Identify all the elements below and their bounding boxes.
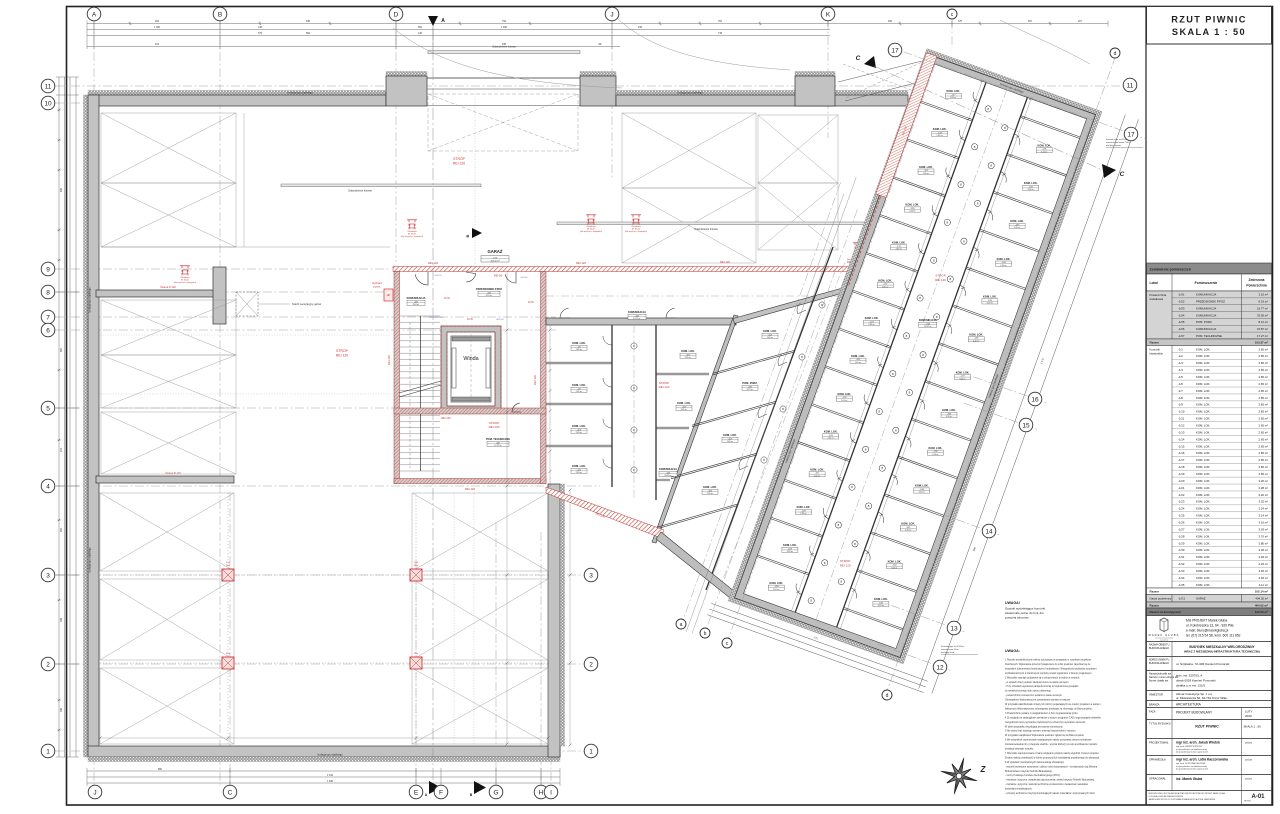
svg-text:Pomieszczenie: Pomieszczenie: [1195, 281, 1218, 285]
svg-text:C: C: [1120, 171, 1125, 178]
svg-text:12: 12: [936, 664, 944, 671]
svg-text:-1/13: -1/13: [1178, 430, 1185, 434]
svg-text:2.65 m²: 2.65 m²: [1259, 389, 1269, 393]
svg-text:KOM. LOK.: KOM. LOK.: [1196, 576, 1211, 580]
svg-text:KOM. LOK.: KOM. LOK.: [1196, 361, 1211, 365]
svg-text:404.02 m²: 404.02 m²: [1255, 603, 1268, 607]
svg-text:-1/33: -1/33: [1015, 224, 1019, 226]
svg-text:Lokal: Lokal: [1150, 281, 1158, 285]
svg-text:2.65 m²: 2.65 m²: [727, 440, 734, 443]
svg-text:RZUT PIWNIC: RZUT PIWNIC: [1195, 725, 1219, 729]
svg-text:308: 308: [60, 707, 63, 712]
svg-text:instalacji wewnątrz szachtu.: instalacji wewnątrz szachtu.: [1005, 748, 1034, 751]
svg-text:KOM. LOK.: KOM. LOK.: [942, 408, 956, 412]
svg-text:3.03 m²: 3.03 m²: [1259, 527, 1269, 531]
svg-text:3.20 m²: 3.20 m²: [1041, 150, 1048, 153]
svg-text:Powierzchnia: Powierzchnia: [1246, 284, 1267, 288]
svg-text:A-01: A-01: [1251, 794, 1265, 800]
svg-text:lokatorskie: lokatorskie: [1150, 351, 1164, 355]
svg-text:3.20 m²: 3.20 m²: [905, 529, 912, 532]
svg-text:-1/07: -1/07: [496, 442, 500, 444]
svg-text:KOM. LOK.: KOM. LOK.: [933, 127, 947, 131]
svg-text:11: 11: [1127, 82, 1134, 89]
svg-text:wzmocnienie 50cm: wzmocnienie 50cm: [941, 649, 959, 651]
svg-text:a: a: [680, 622, 683, 628]
svg-text:- przepisy techniczne instytuc: - przepisy techniczne instytucji kontrol…: [1005, 792, 1096, 795]
svg-text:-1/19: -1/19: [1178, 472, 1185, 476]
svg-text:FAZA: FAZA: [1149, 710, 1156, 714]
svg-text:80/2,00: 80/2,00: [497, 319, 505, 321]
svg-text:d: d: [1114, 51, 1117, 57]
svg-text:-1/07: -1/07: [1178, 334, 1185, 338]
svg-text:148: 148: [258, 26, 263, 29]
svg-text:KOM. LOK.: KOM. LOK.: [1196, 548, 1211, 552]
svg-text:Winda: Winda: [463, 356, 478, 362]
svg-text:2.65 m²: 2.65 m²: [1259, 458, 1269, 462]
svg-text:KOMUNIKACJA: KOMUNIKACJA: [1196, 327, 1216, 331]
svg-text:-1/8: -1/8: [577, 346, 580, 348]
svg-text:4.18 m²: 4.18 m²: [1259, 576, 1269, 580]
svg-text:KOM. LOK.: KOM. LOK.: [703, 485, 717, 489]
svg-text:KOM. LOK.: KOM. LOK.: [837, 392, 851, 396]
svg-text:KOM. LOK.: KOM. LOK.: [919, 165, 933, 169]
svg-text:KOM. LOK.: KOM. LOK.: [1196, 493, 1211, 497]
svg-text:6: 6: [46, 327, 50, 334]
svg-text:-1/42: -1/42: [892, 565, 896, 567]
svg-text:-1/18: -1/18: [1178, 465, 1185, 469]
svg-text:KOM. LOK.: KOM. LOK.: [797, 505, 811, 509]
svg-text:KOM. LOK.: KOM. LOK.: [677, 401, 691, 405]
svg-text:KOM. LOK.: KOM. LOK.: [1196, 375, 1211, 379]
svg-text:POM. PORZ.: POM. PORZ.: [1196, 320, 1213, 324]
svg-text:KOM. LOK.: KOM. LOK.: [929, 446, 943, 450]
svg-text:KOM. LOK.: KOM. LOK.: [572, 464, 586, 468]
svg-text:3.20 m²: 3.20 m²: [891, 566, 898, 569]
svg-text:Izolacja typu ciężkiego: Izolacja typu ciężkiego: [677, 92, 703, 95]
svg-text:1 Rysunki architektoniczne na: 1 Rysunki architektoniczne należy odczyt…: [1005, 659, 1091, 662]
svg-text:3.20 m²: 3.20 m²: [919, 491, 926, 494]
svg-text:-1/31: -1/31: [1178, 555, 1185, 559]
svg-text:KOM. LOK.: KOM. LOK.: [723, 433, 737, 437]
svg-text:-1/20: -1/20: [1178, 479, 1185, 483]
svg-text:2.65 m²: 2.65 m²: [576, 471, 583, 474]
svg-text:-1/22: -1/22: [883, 284, 887, 286]
svg-text:2.65 m²: 2.65 m²: [1259, 410, 1269, 414]
svg-text:b: b: [704, 631, 707, 637]
svg-text:BUDOWLANEGO: BUDOWLANEGO: [1149, 647, 1169, 650]
svg-text:podpis: podpis: [1245, 742, 1253, 745]
svg-text:-1/05: -1/05: [1178, 320, 1185, 324]
svg-text:-1/2: -1/2: [1178, 354, 1183, 358]
svg-text:KOM. LOK.: KOM. LOK.: [1196, 444, 1211, 448]
svg-text:-1/01: -1/01: [1178, 293, 1185, 297]
svg-text:8 W sprawach nieokreślonych d: 8 W sprawach nieokreślonych dokumentacją…: [1005, 761, 1064, 764]
svg-text:Razem na kondygnacji: Razem na kondygnacji: [1150, 610, 1181, 614]
svg-text:-1/28: -1/28: [1178, 534, 1185, 538]
svg-text:2.65 m²: 2.65 m²: [1259, 430, 1269, 434]
svg-text:POM. TECHNICZNE: POM. TECHNICZNE: [1196, 334, 1222, 338]
svg-text:8.12 m²: 8.12 m²: [747, 388, 754, 391]
svg-text:Zestawienie pomieszczeń: Zestawienie pomieszczeń: [1150, 268, 1191, 272]
svg-text:RZUT PIWNIC: RZUT PIWNIC: [1171, 15, 1247, 25]
svg-text:KOM. LOK.: KOM. LOK.: [1196, 451, 1211, 455]
svg-text:2.65 m²: 2.65 m²: [882, 285, 889, 288]
svg-text:D: D: [394, 11, 399, 18]
svg-text:-1/21: -1/21: [897, 246, 901, 248]
svg-text:103.37 m²: 103.37 m²: [1255, 341, 1268, 345]
svg-text:-1/11: -1/11: [577, 469, 581, 471]
svg-text:-1/34: -1/34: [1178, 576, 1185, 580]
svg-text:2.65 m²: 2.65 m²: [1259, 368, 1269, 372]
svg-text:B: B: [218, 11, 222, 18]
svg-text:2.65 m²: 2.65 m²: [773, 588, 780, 591]
svg-text:3.10 m²: 3.10 m²: [1259, 293, 1269, 297]
svg-text:SPRAWDZIŁA: SPRAWDZIŁA: [1149, 758, 1166, 762]
svg-text:860: 860: [158, 768, 163, 771]
svg-text:-1/04: -1/04: [666, 472, 670, 474]
svg-text:455: 455: [888, 20, 893, 23]
svg-text:2.65 m²: 2.65 m²: [787, 550, 794, 553]
svg-text:REI 120: REI 120: [720, 260, 731, 264]
svg-text:(do wejścia z budynku): (do wejścia z budynku): [401, 236, 424, 238]
svg-text:2: 2: [46, 661, 50, 668]
svg-text:3.20 m²: 3.20 m²: [1014, 226, 1021, 229]
svg-text:REI 120: REI 120: [840, 563, 851, 567]
svg-text:15: 15: [1022, 422, 1030, 429]
svg-text:KOM. LOK.: KOM. LOK.: [1196, 486, 1211, 490]
svg-text:-1/16: -1/16: [1178, 451, 1185, 455]
svg-text:REI 120: REI 120: [336, 354, 348, 358]
svg-text:upr. bud. 11/ZPOIA/OKK/2008: upr. bud. 11/ZPOIA/OKK/2008: [1176, 762, 1206, 765]
svg-text:KOM. LOK.: KOM. LOK.: [1196, 465, 1211, 469]
svg-text:2.65 m²: 2.65 m²: [1259, 444, 1269, 448]
svg-text:-1/7: -1/7: [1178, 389, 1183, 393]
svg-text:2.65 m²: 2.65 m²: [1259, 382, 1269, 386]
svg-text:3: 3: [46, 572, 50, 579]
svg-text:8.12 m²: 8.12 m²: [1259, 320, 1269, 324]
svg-text:-1/31: -1/31: [1042, 149, 1046, 151]
svg-text:KOM. LOK.: KOM. LOK.: [1024, 181, 1038, 185]
svg-text:-1/37: -1/37: [960, 376, 964, 378]
svg-text:-1/23: -1/23: [869, 321, 873, 323]
svg-text:ul. Szpitalna, 72-400 Kamień P: ul. Szpitalna, 72-400 Kamień Pomorski: [1176, 662, 1230, 666]
svg-text:KOM. LOK.: KOM. LOK.: [892, 241, 906, 245]
svg-text:-1/29: -1/29: [788, 548, 792, 550]
svg-text:KOM. LOK.: KOM. LOK.: [1196, 521, 1211, 525]
svg-text:3.14 m²: 3.14 m²: [1259, 514, 1269, 518]
svg-text:A: A: [441, 18, 445, 24]
svg-text:lokatorskie pełne do h=1,4m: lokatorskie pełne do h=1,4m: [1005, 611, 1044, 615]
svg-text:KOM. LOK.: KOM. LOK.: [946, 89, 960, 93]
svg-text:3.20 m²: 3.20 m²: [959, 377, 966, 380]
svg-text:J: J: [93, 789, 96, 796]
svg-text:308: 308: [60, 617, 63, 622]
svg-text:3.80 m²: 3.80 m²: [1259, 541, 1269, 545]
svg-text:-1/5: -1/5: [1178, 375, 1183, 379]
svg-text:1 496: 1 496: [501, 26, 508, 29]
svg-text:(do wejścia z budynku): (do wejścia z budynku): [580, 231, 603, 233]
svg-text:2.65 m²: 2.65 m²: [1259, 472, 1269, 476]
svg-text:3.20 m²: 3.20 m²: [1259, 479, 1269, 483]
svg-text:KOM. LOK.: KOM. LOK.: [1196, 382, 1211, 386]
svg-text:2.65 m²: 2.65 m²: [576, 348, 583, 351]
svg-text:obręb 0003 Kamień Pomorski: obręb 0003 Kamień Pomorski: [1176, 679, 1216, 683]
svg-text:-1/04: -1/04: [1178, 313, 1185, 317]
svg-text:375: 375: [258, 32, 263, 35]
svg-text:-1/18: -1/18: [938, 132, 942, 134]
svg-text:KOM. LOK.: KOM. LOK.: [1196, 458, 1211, 462]
svg-text:2.65 m²: 2.65 m²: [909, 210, 916, 213]
svg-text:ul. Mickiewicza 52, 64-761 Krz: ul. Mickiewicza 52, 64-761 Krzyż Wlkp.: [1176, 696, 1228, 700]
svg-text:-1/43: -1/43: [879, 603, 883, 605]
svg-text:REI 120: REI 120: [387, 355, 391, 366]
svg-text:3.28 m²: 3.28 m²: [1259, 486, 1269, 490]
svg-text:4.18 m²: 4.18 m²: [1259, 555, 1269, 559]
svg-text:tel. (67) 215 54 58, kom. 600: tel. (67) 215 54 58, kom. 600 111 852: [1186, 634, 1241, 638]
svg-text:GARAŻ: GARAŻ: [1196, 596, 1206, 601]
svg-text:-1/02: -1/02: [1178, 300, 1185, 304]
svg-text:Razem: Razem: [1150, 603, 1160, 607]
svg-text:2.65 m²: 2.65 m²: [1259, 347, 1269, 351]
svg-text:W przypadku wątpliwości Wykona: W przypadku wątpliwości Wykonawca powini…: [1005, 734, 1085, 737]
svg-text:A: A: [92, 11, 97, 18]
svg-text:BUDOWLANEGO: BUDOWLANEGO: [1149, 662, 1169, 665]
svg-text:W przypadku jakichkolwiek zmia: W przypadku jakichkolwiek zmiany lub róż…: [1005, 703, 1101, 706]
svg-text:2.65 m²: 2.65 m²: [1259, 396, 1269, 400]
svg-text:3.24 m²: 3.24 m²: [1259, 507, 1269, 511]
svg-text:Szacht wentylacyjny gazów: Szacht wentylacyjny gazów: [292, 303, 321, 306]
svg-text:638: 638: [306, 20, 311, 23]
svg-text:2.65 m²: 2.65 m²: [841, 399, 848, 402]
svg-text:upr. bud. 46/WPOKK/2015: upr. bud. 46/WPOKK/2015: [1176, 745, 1203, 748]
svg-text:KOM. LOK.: KOM. LOK.: [851, 354, 865, 358]
svg-text:2.65 m²: 2.65 m²: [827, 437, 834, 440]
svg-text:-1/34: -1/34: [1001, 262, 1005, 264]
svg-text:REI 120: REI 120: [453, 162, 465, 166]
svg-text:- powierzchnie pomieszczeń pod: - powierzchnie pomieszczeń podano w stan…: [1005, 694, 1063, 697]
svg-text:4.18 m²: 4.18 m²: [1259, 569, 1269, 573]
svg-text:Razem: Razem: [1150, 590, 1160, 594]
svg-text:17.27 m²: 17.27 m²: [494, 444, 502, 447]
svg-text:wzmocnienie konstr. 50cm: wzmocnienie konstr. 50cm: [1106, 141, 1131, 144]
svg-text:KOM. LOK.: KOM. LOK.: [1196, 354, 1211, 358]
svg-text:KOM. LOK.: KOM. LOK.: [1196, 555, 1211, 559]
svg-text:15.87 m²: 15.87 m²: [924, 325, 932, 328]
svg-text:KOM. LOK.: KOM. LOK.: [681, 349, 695, 353]
svg-text:Obowiązkiem Wykonawcy jest spr: Obowiązkiem Wykonawcy jest sprawdzenie w…: [1005, 699, 1071, 702]
svg-text:Izolacja typu ciężkiego: Izolacja typu ciężkiego: [89, 547, 92, 573]
svg-text:KOM. LOK.: KOM. LOK.: [783, 543, 797, 547]
svg-text:KOM. LOK.: KOM. LOK.: [1196, 514, 1211, 518]
svg-text:17: 17: [1127, 131, 1135, 138]
svg-text:19.77 m²: 19.77 m²: [1257, 306, 1268, 310]
svg-text:-1/19: -1/19: [924, 170, 928, 172]
svg-text:PROJEKT BUDOWLANY: PROJEKT BUDOWLANY: [1176, 711, 1213, 715]
svg-text:Odwodnienie liniowe: Odwodnienie liniowe: [348, 189, 372, 193]
svg-text:W takim przypadku decydująca j: W takim przypadku decydująca jest wymiar…: [1005, 725, 1063, 728]
svg-text:-1/26: -1/26: [1178, 521, 1185, 525]
svg-text:17: 17: [891, 47, 899, 54]
svg-text:404: 404: [155, 43, 160, 46]
svg-text:2.65 m²: 2.65 m²: [1259, 403, 1269, 407]
svg-text:(do wejścia z budynku): (do wejścia z budynku): [174, 282, 197, 284]
svg-text:ARCHITEKTURA: ARCHITEKTURA: [1176, 703, 1202, 707]
svg-text:3.20 m²: 3.20 m²: [878, 604, 885, 607]
svg-text:REI 120: REI 120: [935, 278, 946, 282]
svg-text:2.65 m²: 2.65 m²: [1259, 465, 1269, 469]
svg-text:pod płytę fund.: pod płytę fund.: [941, 651, 955, 654]
svg-text:B: B: [465, 234, 470, 237]
svg-text:UWAGA!: UWAGA!: [1005, 601, 1020, 605]
svg-text:6 We wszystkich czynnościach: 6 We wszystkich czynnościach instalacyjn…: [1005, 739, 1092, 742]
svg-text:6.19 m²: 6.19 m²: [486, 294, 493, 297]
svg-text:PRZEŚWIT 1,8: PRZEŚWIT 1,8: [429, 316, 444, 319]
svg-text:do niewykończonego dołu otworu: do niewykończonego dołu otworu okiennego…: [1005, 690, 1052, 693]
svg-text:3.20 m²: 3.20 m²: [1027, 188, 1034, 191]
svg-text:- w opisach zbiorу opisami wie: - w opisach zbiorу opisami wielkość otwo…: [1005, 681, 1070, 684]
svg-text:- normy Polskiego Komitetu Nor: - normy Polskiego Komitetu Normalizacyjn…: [1005, 774, 1061, 777]
svg-text:w specjalności architektoniczn: w specjalności architektonicznej: [1176, 765, 1208, 768]
svg-text:-1/30: -1/30: [774, 586, 778, 588]
svg-text:105.14 m²: 105.14 m²: [1255, 590, 1268, 594]
svg-text:592: 592: [306, 32, 311, 35]
svg-text:wszystkimi dokumentami branżow: wszystkimi dokumentami branżowymi i budo…: [1005, 667, 1097, 670]
svg-text:-1/13: -1/13: [682, 406, 686, 408]
svg-text:KOM. LOK.: KOM. LOK.: [824, 430, 838, 434]
svg-text:J: J: [610, 11, 613, 18]
svg-text:-1/12: -1/12: [1178, 423, 1185, 427]
svg-text:4: 4: [46, 483, 50, 490]
svg-text:KOM. LOK.: KOM. LOK.: [810, 467, 824, 471]
svg-text:REI 80: REI 80: [494, 274, 503, 278]
svg-text:-1/4: -1/4: [1178, 368, 1183, 372]
svg-text:2.65 m²: 2.65 m²: [896, 248, 903, 251]
svg-text:5: 5: [46, 405, 50, 412]
svg-text:KOM. LOK.: KOM. LOK.: [983, 295, 997, 299]
svg-text:KOMUNIKACJA: KOMUNIKACJA: [659, 468, 677, 471]
svg-text:19.77 m²: 19.77 m²: [633, 317, 641, 320]
svg-text:KOMUNIKACJA: KOMUNIKACJA: [919, 319, 937, 322]
svg-text:POM. TECHNICZNE: POM. TECHNICZNE: [486, 437, 510, 441]
svg-text:-1/29: -1/29: [1178, 541, 1185, 545]
svg-text:KOM. LOK.: KOM. LOK.: [1196, 423, 1211, 427]
svg-text:3.20 m²: 3.20 m²: [987, 302, 994, 305]
svg-text:33.05 m²: 33.05 m²: [1257, 313, 1268, 317]
svg-text:KOM. LOK.: KOM. LOK.: [1196, 507, 1211, 511]
svg-text:3.32 m²: 3.32 m²: [1259, 500, 1269, 504]
svg-text:-1/6: -1/6: [1178, 382, 1183, 386]
svg-text:Zmiany należy przedstawić w fo: Zmiany należy przedstawić w formie propo…: [1005, 756, 1100, 759]
svg-text:404.02 m²: 404.02 m²: [490, 260, 499, 263]
svg-text:-1/14: -1/14: [1178, 437, 1185, 441]
svg-text:KOM. LOK.: KOM. LOK.: [572, 341, 586, 345]
svg-text:G: G: [493, 789, 498, 796]
svg-text:KOM. LOK.: KOM. LOK.: [1196, 479, 1211, 483]
svg-text:REI 120: REI 120: [659, 385, 670, 389]
svg-text:KOM. LOK.: KOM. LOK.: [878, 278, 892, 282]
svg-text:GARAŻ: GARAŻ: [488, 249, 503, 254]
svg-text:jedn. ew. 320703_4: jedn. ew. 320703_4: [1175, 674, 1202, 678]
svg-text:(niezastosowania min. przegrod: (niezastosowania min. przegrodę szachtu …: [1005, 743, 1098, 746]
svg-text:p.poż.: p.poż.: [373, 285, 381, 289]
svg-text:WRAZ Z NIEZBĘDNĄ INFRASTRUKTUR: WRAZ Z NIEZBĘDNĄ INFRASTRUKTURĄ TECHNICZ…: [1184, 650, 1261, 654]
svg-text:HP: HP: [387, 293, 391, 297]
svg-text:2.65 m²: 2.65 m²: [681, 408, 688, 411]
svg-text:16: 16: [1031, 396, 1039, 403]
svg-text:EI 30: EI 30: [467, 318, 473, 321]
svg-text:REI 120: REI 120: [576, 261, 587, 265]
svg-text:2.65 m²: 2.65 m²: [855, 361, 862, 364]
svg-text:-1/17: -1/17: [951, 95, 955, 97]
svg-text:Odwodnienie liniowe: Odwodnienie liniowe: [492, 45, 516, 49]
svg-text:NR RYS.: NR RYS.: [1244, 801, 1252, 803]
svg-text:KOM. LOK.: KOM. LOK.: [906, 203, 920, 207]
svg-text:2: 2: [589, 661, 593, 668]
svg-text:8: 8: [46, 289, 50, 296]
svg-text:2.65 m²: 2.65 m²: [868, 323, 875, 326]
svg-text:4.23 m²: 4.23 m²: [1259, 562, 1269, 566]
svg-text:KOMUNIKACJA: KOMUNIKACJA: [1196, 293, 1216, 297]
svg-text:KOMUNIKACJA: KOMUNIKACJA: [628, 311, 646, 314]
svg-text:2.65 m²: 2.65 m²: [1259, 354, 1269, 358]
svg-text:STROP: STROP: [336, 349, 348, 353]
svg-text:264: 264: [60, 527, 63, 532]
svg-text:10: 10: [44, 100, 52, 107]
svg-text:KOM. LOK.: KOM. LOK.: [1196, 347, 1211, 351]
svg-text:13: 13: [950, 625, 958, 632]
svg-text:-1/36: -1/36: [974, 338, 978, 340]
svg-text:-1/25: -1/25: [1178, 514, 1185, 518]
svg-text:dodatkowa: dodatkowa: [1150, 297, 1164, 301]
svg-text:-1/24: -1/24: [856, 359, 860, 361]
svg-text:KOM. LOK.: KOM. LOK.: [1196, 389, 1211, 393]
svg-text:- instrukcje, wytyczne i warun: - instrukcje, wytyczne i warunki technic…: [1005, 783, 1088, 786]
svg-text:1: 1: [46, 748, 50, 755]
svg-text:KOM. LOK.: KOM. LOK.: [874, 597, 888, 601]
svg-text:3.20 m²: 3.20 m²: [932, 453, 939, 456]
svg-text:2020: 2020: [1245, 714, 1252, 718]
svg-text:-1/12: -1/12: [686, 354, 690, 356]
svg-text:2.65 m²: 2.65 m²: [1259, 375, 1269, 379]
svg-text:KOM. LOK.: KOM. LOK.: [1196, 500, 1211, 504]
svg-text:Izolacja typu ciężkiego: Izolacja typu ciężkiego: [317, 754, 343, 757]
svg-text:454: 454: [155, 20, 160, 23]
svg-text:-1/14: -1/14: [768, 334, 772, 336]
svg-text:ul. Kołobrzeska 13, 64 - 920 P: ul. Kołobrzeska 13, 64 - 920 Piła: [1186, 624, 1234, 628]
svg-text:POM. PORZ.: POM. PORZ.: [742, 381, 758, 385]
svg-text:-1/02: -1/02: [487, 292, 491, 294]
svg-text:-1/35: -1/35: [1178, 583, 1185, 587]
svg-text:6.19 m²: 6.19 m²: [1259, 300, 1269, 304]
svg-text:404.02 m²: 404.02 m²: [1255, 597, 1268, 601]
svg-text:KOMUNIKACJA: KOMUNIKACJA: [407, 297, 426, 300]
svg-text:REI 120: REI 120: [465, 487, 476, 491]
svg-text:-1/27: -1/27: [815, 473, 819, 475]
svg-text:STROP: STROP: [453, 157, 465, 161]
svg-text:3.70 m²: 3.70 m²: [1259, 534, 1269, 538]
svg-text:Odwodnienie liniowe: Odwodnienie liniowe: [694, 227, 718, 231]
svg-text:KOM. LOK.: KOM. LOK.: [1196, 437, 1211, 441]
svg-text:Numer działki ew.: Numer działki ew.: [1149, 679, 1169, 682]
svg-text:9: 9: [46, 266, 50, 273]
svg-text:C: C: [228, 789, 233, 796]
svg-text:-1/20: -1/20: [910, 208, 914, 210]
svg-text:UWAGA:: UWAGA:: [1005, 649, 1020, 653]
svg-text:612.53 m²: 612.53 m²: [1255, 610, 1268, 614]
svg-text:KOM. LOK.: KOM. LOK.: [1196, 396, 1211, 400]
svg-text:- instrukcje, wytyczne, świade: - instrukcje, wytyczne, świadectwa dopus…: [1005, 779, 1095, 782]
svg-text:mgr inż. arch. Lidia Kaczorows: mgr inż. arch. Lidia Kaczorowska: [1176, 758, 1228, 762]
